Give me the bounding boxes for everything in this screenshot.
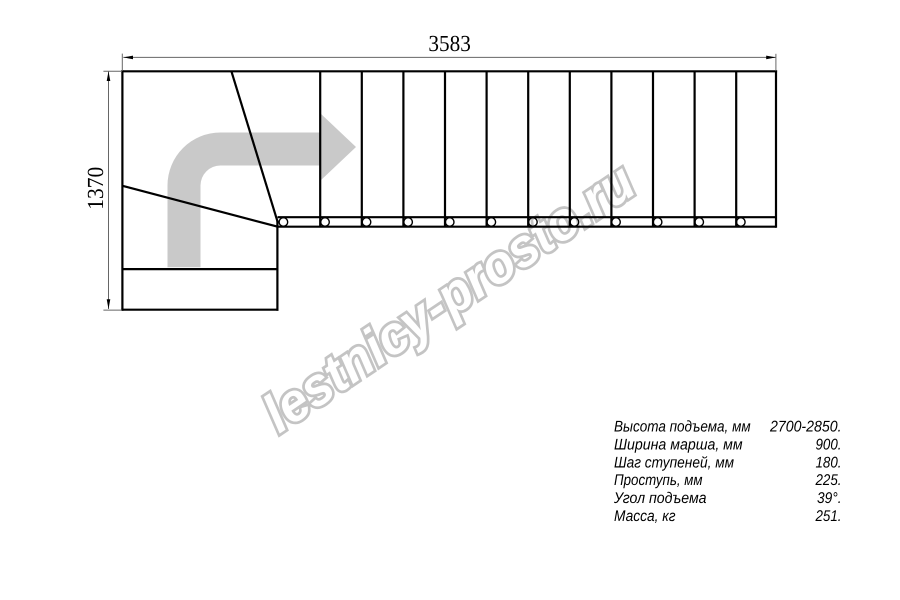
- svg-text:Ширина марша, мм: Ширина марша, мм: [614, 436, 743, 453]
- svg-text:39°.: 39°.: [817, 490, 842, 507]
- svg-text:251.: 251.: [815, 508, 842, 525]
- svg-text:2700-2850.: 2700-2850.: [769, 419, 841, 436]
- svg-text:Высота подъема, мм: Высота подъема, мм: [614, 419, 751, 436]
- svg-text:Проступь, мм: Проступь, мм: [614, 472, 703, 489]
- svg-text:3583: 3583: [428, 31, 471, 56]
- svg-text:1370: 1370: [83, 167, 108, 210]
- svg-text:900.: 900.: [816, 436, 842, 453]
- svg-text:Шаг ступеней, мм: Шаг ступеней, мм: [614, 454, 734, 471]
- svg-text:180.: 180.: [816, 454, 842, 471]
- svg-text:Угол подъема: Угол подъема: [613, 490, 707, 507]
- svg-text:Масса, кг: Масса, кг: [614, 508, 676, 525]
- svg-text:225.: 225.: [815, 472, 842, 489]
- svg-text:lestnicy-prosto.ru: lestnicy-prosto.ru: [252, 152, 645, 444]
